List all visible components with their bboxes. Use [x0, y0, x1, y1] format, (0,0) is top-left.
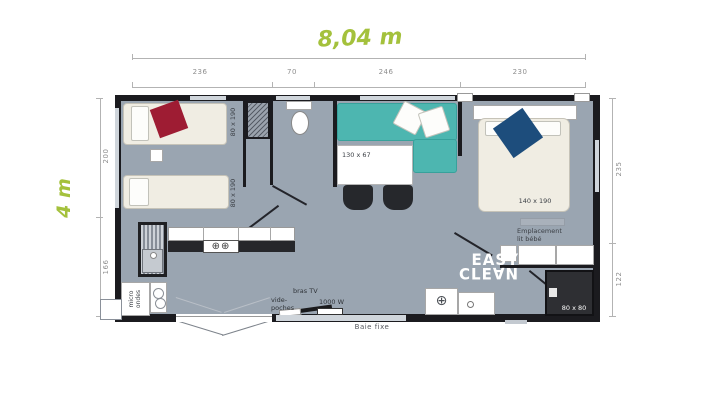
nightstand: [150, 149, 163, 162]
external-niche: [100, 299, 122, 320]
top-overall-tick-left: [132, 54, 133, 60]
easy-clean-logo: EASY CLE∀N: [459, 252, 519, 281]
sofa-bench-corner: [413, 139, 457, 173]
entry-threshold-line: [176, 316, 272, 317]
wc-door-leaf: [272, 185, 307, 206]
right-dim-line: [612, 98, 613, 317]
tv-arm-label: bras TV: [293, 287, 318, 295]
top-seg-tick-1: [132, 82, 133, 88]
bottom-vent-tab: [505, 320, 527, 324]
heater-label: 1000 W: [319, 298, 344, 306]
shower-drain: [549, 288, 557, 297]
crib-faint-box: [520, 218, 565, 226]
toilet-tank: [286, 101, 312, 110]
top-corner-post-1: [457, 93, 473, 102]
crib-line-2: lit bébé: [517, 235, 541, 243]
kitchen-upper-cabinets: [168, 227, 295, 241]
top-dim-230: 230: [490, 68, 550, 76]
left-tick-2: [96, 217, 103, 218]
toilet-bowl: [291, 111, 309, 135]
bedroom-east-wall: [243, 139, 246, 187]
top-seg-tick-4: [460, 82, 461, 88]
wc-left-wall: [270, 101, 273, 185]
fixed-bay-window: [276, 315, 406, 321]
entry-swing-left: [176, 297, 222, 313]
fixed-window-label: Baie fixe: [330, 323, 414, 331]
top-seg-tick-5: [585, 82, 586, 88]
floorplan-body: 80 x 190 80 x 190 130 x 67 140 x 190 Emp…: [115, 95, 600, 322]
top-overall-dim-line: [132, 58, 585, 59]
storage-line-1: vide-: [271, 296, 287, 304]
right-tick-2: [609, 243, 616, 244]
single-bed-1-pillow: [131, 106, 149, 141]
top-window-1: [190, 96, 226, 100]
top-seg-tick-2: [272, 82, 273, 88]
single-bed-1-size: 80 x 190: [229, 102, 239, 142]
master-cabinet-2: [556, 245, 594, 265]
vanity-sink-hole: [467, 301, 474, 308]
top-seg-tick-3: [314, 82, 315, 88]
right-tick-3: [609, 316, 616, 317]
top-window-2: [276, 96, 310, 100]
top-window-3: [360, 96, 455, 100]
top-dim-246: 246: [356, 68, 416, 76]
top-dim-236: 236: [170, 68, 230, 76]
living-master-wall: [458, 101, 462, 156]
single-bed-2-pillow: [129, 178, 149, 206]
cabinet-divider-3: [270, 227, 271, 241]
entry-swing-right: [224, 297, 270, 313]
top-overall-tick-right: [585, 54, 586, 60]
top-corner-post-2: [574, 93, 590, 102]
microwave-label: micro ondes: [128, 281, 142, 317]
left-tick-1: [96, 98, 103, 99]
sink-faucet: [150, 252, 157, 259]
master-cabinet-1: [518, 245, 556, 265]
overall-height-label: 4 m: [53, 176, 75, 220]
vanity: [458, 292, 495, 315]
double-bed-size: 140 x 190: [505, 197, 565, 205]
entry-door-leaf-right: [222, 320, 270, 336]
hob-unit: ⊕⊕: [203, 240, 239, 253]
washbasin-icon: ⊕: [425, 291, 458, 311]
left-dim-line: [100, 98, 101, 317]
cabinet-divider-1: [203, 227, 204, 241]
shower-size: 80 x 80: [555, 304, 593, 312]
chair-1: [343, 185, 373, 210]
single-bed-2-size: 80 x 190: [229, 173, 239, 213]
right-window: [595, 140, 599, 192]
cabinet-divider-2: [238, 227, 239, 241]
crib-line-1: Emplacement: [517, 227, 562, 235]
crib-area-label: Emplacement lit bébé: [517, 227, 589, 243]
end-unit-ring-2: [155, 298, 166, 309]
microwave-line-2: ondes: [135, 290, 142, 308]
left-dim-166: 166: [102, 247, 110, 287]
right-dim-235: 235: [615, 149, 623, 189]
heater-1000w: [317, 308, 343, 315]
left-window: [115, 108, 119, 208]
logo-line-2: CLE∀N: [459, 265, 519, 284]
floorplan-canvas: 8,04 m 236 70 246 230 4 m 200 166 235 12…: [0, 0, 720, 403]
table-size: 130 x 67: [342, 151, 371, 159]
top-dim-70: 70: [272, 68, 312, 76]
chair-2: [383, 185, 413, 210]
top-segment-dim-line: [132, 87, 585, 88]
entry-door-leaf-left: [176, 320, 224, 336]
microwave-line-1: micro: [128, 291, 135, 308]
left-dim-200: 200: [102, 136, 110, 176]
right-dim-122: 122: [615, 259, 623, 299]
wardrobe: [246, 101, 270, 139]
storage-line-2: poches: [271, 304, 294, 312]
overall-width-label: 8,04 m: [300, 24, 421, 53]
storage-label: vide- poches: [271, 296, 294, 312]
right-tick-1: [609, 98, 616, 99]
